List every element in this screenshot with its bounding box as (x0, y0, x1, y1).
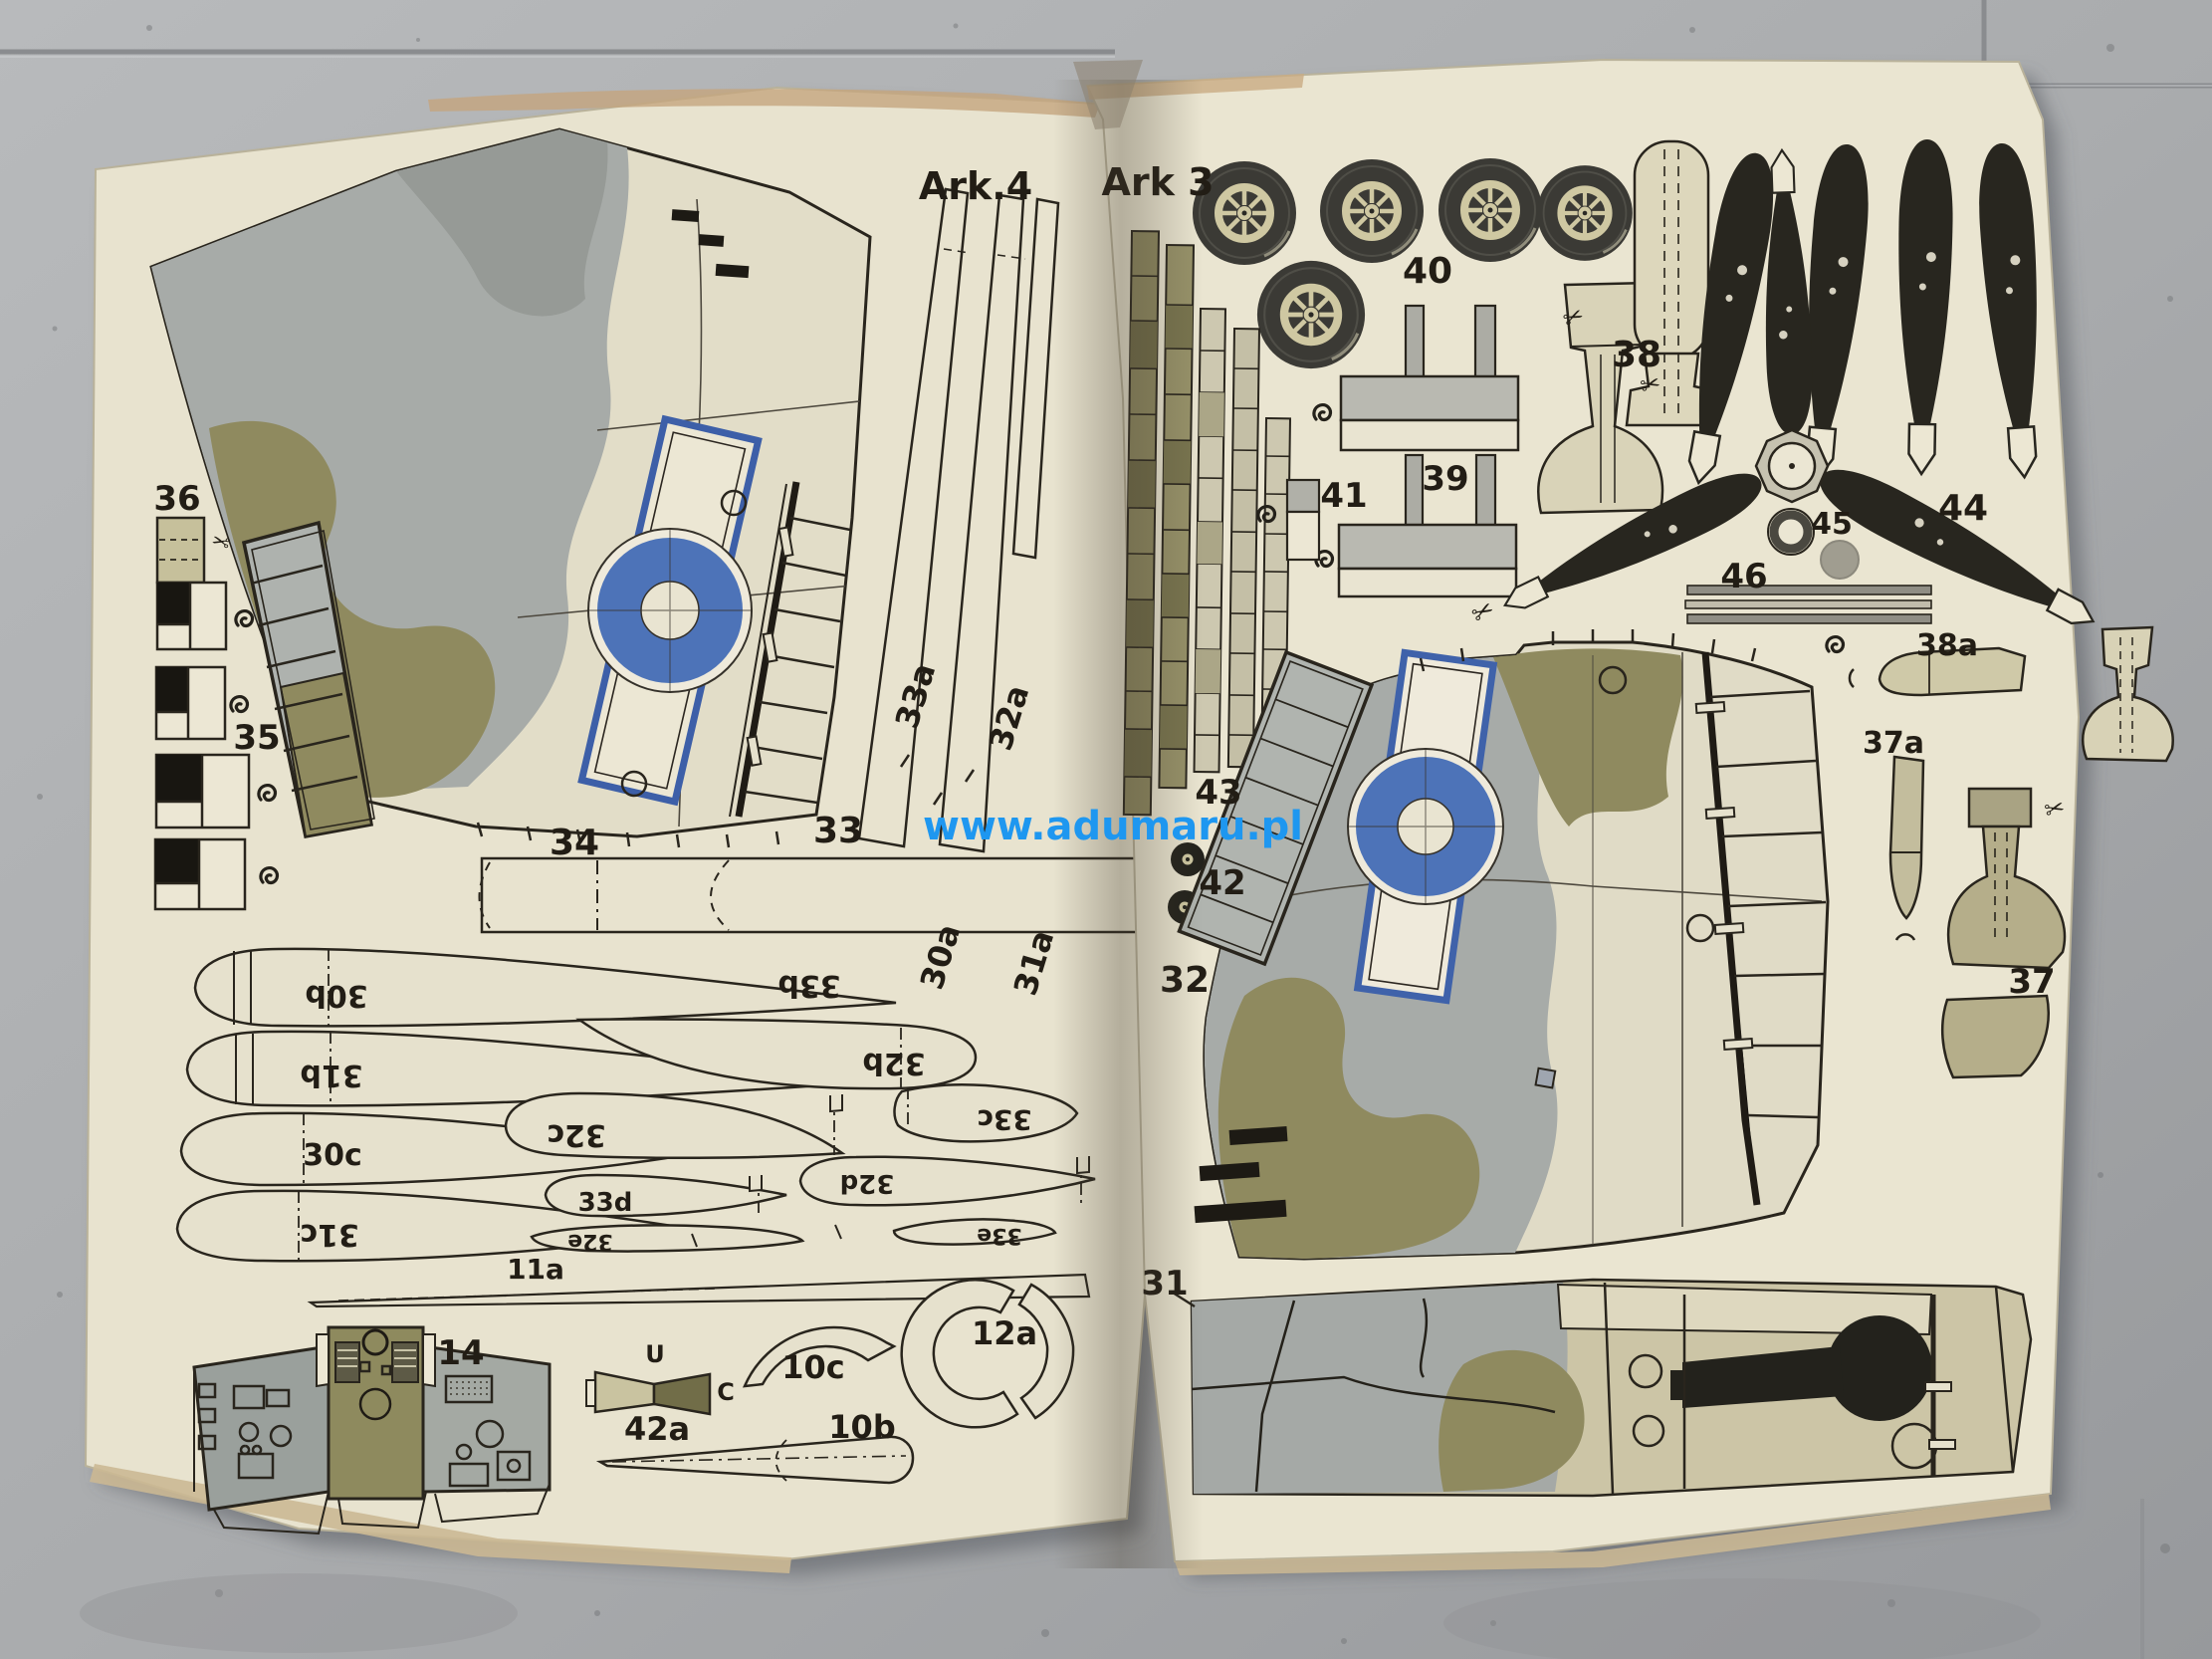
raf-roundel (1348, 749, 1503, 904)
part-label: 37a (1863, 726, 1924, 761)
part-31-slab (1173, 1280, 2031, 1496)
part-label: 32b (862, 1046, 925, 1080)
part-label: 11a (507, 1253, 564, 1286)
part-label: 14 (437, 1333, 484, 1373)
part-label: 31b (300, 1058, 362, 1092)
part-label: 30b (305, 978, 367, 1013)
raf-roundel (588, 529, 752, 692)
part-label: 31c (300, 1217, 359, 1252)
part-label: 12a (972, 1314, 1037, 1352)
part-label: 32e (567, 1229, 613, 1254)
right-wing-part: ✂ (1179, 594, 1828, 1259)
part-label: 42 (1199, 863, 1245, 903)
part-label: 33b (777, 968, 840, 1003)
part-label: 36 (153, 479, 200, 519)
part-label: 41 (1320, 476, 1367, 516)
part-label: U (645, 1340, 665, 1368)
part-label: 46 (1720, 557, 1767, 596)
part-label: 37 (2008, 962, 2055, 1002)
part-label: 33d (578, 1188, 633, 1218)
part-label: C (717, 1378, 735, 1406)
part-label: 44 (1938, 488, 1988, 529)
part-label: 35 (233, 718, 280, 758)
photo-of-paper-model-sheets: ✂ (0, 0, 2212, 1659)
part-label: 39 (1422, 459, 1468, 499)
part-label: 32d (840, 1168, 895, 1198)
part-label: 38a (1916, 628, 1978, 663)
part-label: 33c (977, 1103, 1032, 1136)
part-label: 30c (303, 1138, 362, 1173)
part-label: 38 (1612, 335, 1661, 375)
part-label: 33e (977, 1223, 1022, 1248)
part-label: 42a (624, 1410, 690, 1448)
watermark-text: www.adumaru.pl (923, 804, 1303, 849)
part-label: 45 (1811, 507, 1853, 542)
part-label: 33 (813, 811, 863, 851)
part-label: 32c (547, 1117, 606, 1152)
part-label: 34 (550, 823, 599, 863)
part-label: 10c (781, 1348, 845, 1386)
part-label: 10b (828, 1408, 895, 1446)
part-label: 40 (1403, 251, 1452, 292)
sheet-label: Ark.4 (919, 164, 1032, 208)
